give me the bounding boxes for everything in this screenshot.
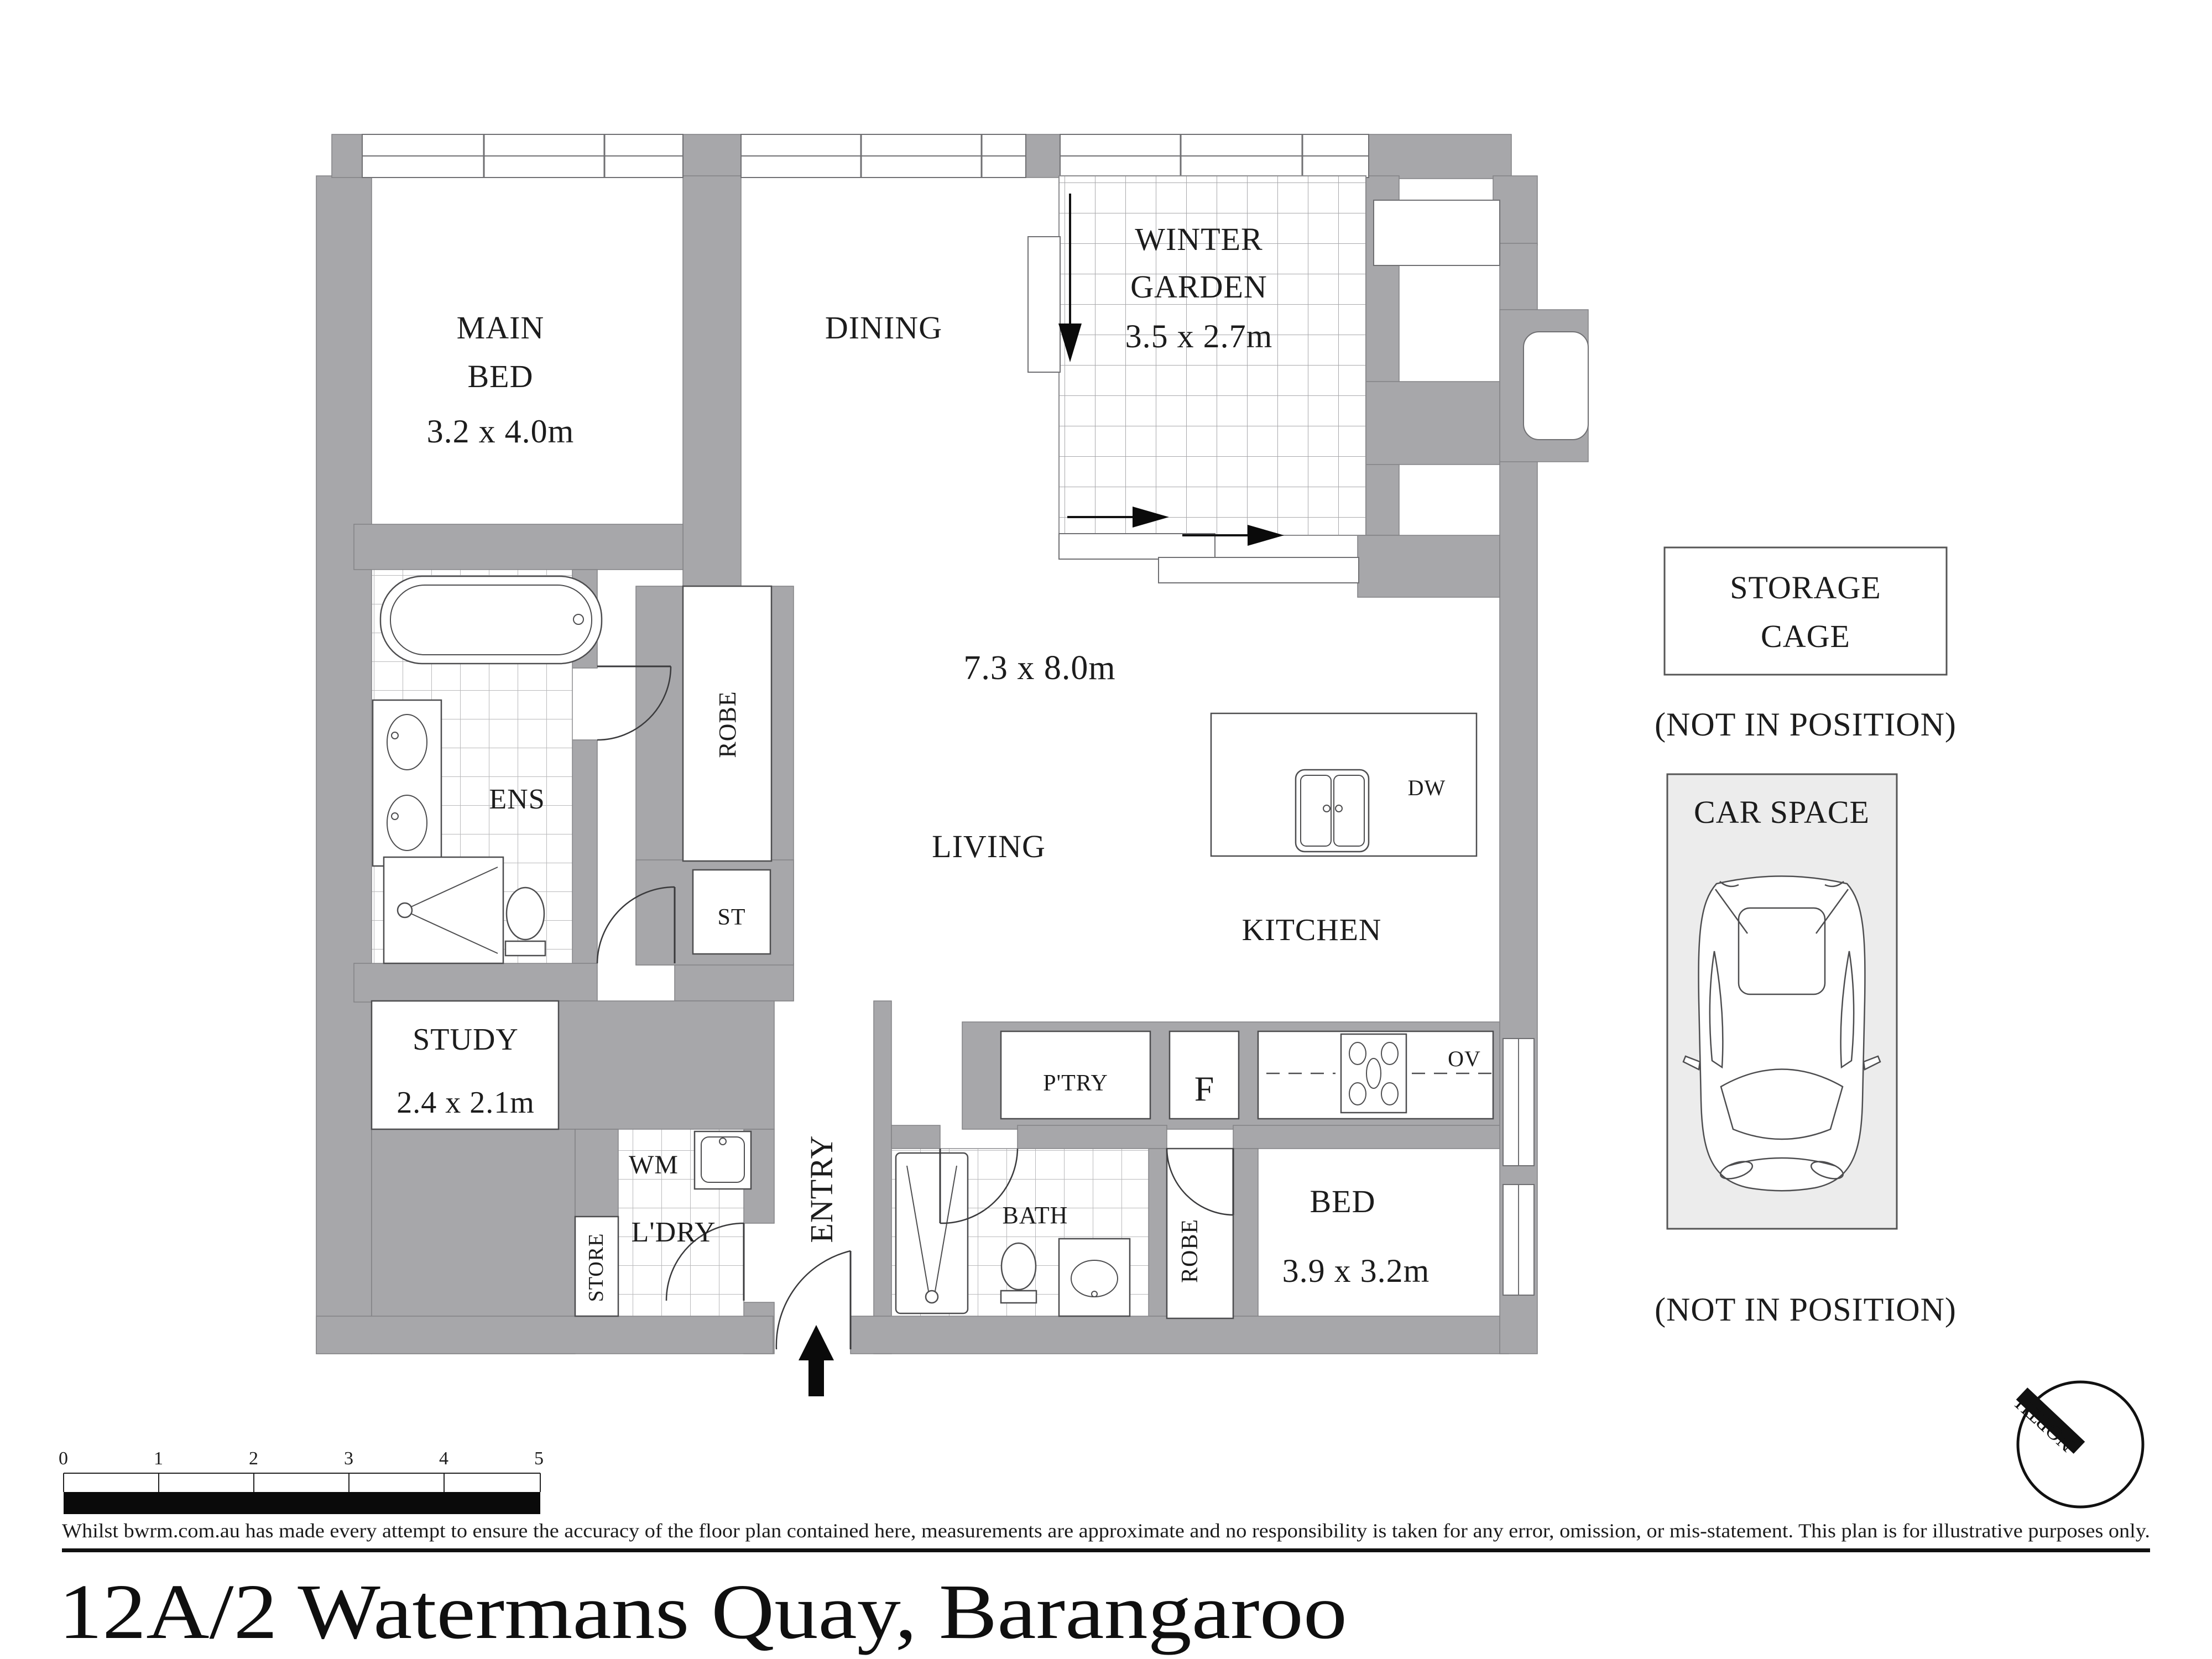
toilet-icon [505, 888, 545, 956]
storage-cage-label2: CAGE [1761, 618, 1850, 654]
scale-tick-0: 0 [59, 1448, 69, 1469]
not-in-position-label: (NOT IN POSITION) [1655, 706, 1957, 743]
bed-dims: 3.9 x 3.2m [1282, 1253, 1430, 1289]
sliding-door-track [1028, 237, 1060, 372]
sliding-door-track [1159, 557, 1359, 583]
scale-tick-5: 5 [534, 1448, 544, 1469]
bath-label: BATH [1003, 1202, 1068, 1229]
disclaimer-text: Whilst bwrm.com.au has made every attemp… [62, 1520, 2150, 1542]
north-compass: NORTH [2011, 1382, 2143, 1507]
scale-tick-2: 2 [249, 1448, 259, 1469]
fridge-label: F [1194, 1069, 1215, 1108]
window-segment [1060, 134, 1369, 178]
entry-arrow-icon [799, 1325, 834, 1396]
window-segment [741, 134, 1026, 178]
facade-recess [1524, 332, 1588, 440]
storage-cage-label: STORAGE [1730, 570, 1881, 606]
window-segment [362, 134, 683, 178]
scale-tick-1: 1 [154, 1448, 164, 1469]
entry-label: ENTRY [804, 1135, 839, 1243]
study-label: STUDY [413, 1022, 519, 1057]
not-in-position-label2: (NOT IN POSITION) [1655, 1291, 1957, 1328]
dining-label: DINING [825, 310, 942, 346]
bathtub-icon [380, 576, 602, 664]
kitchen-label: KITCHEN [1242, 913, 1382, 947]
scale-bar: 0 1 2 3 4 5 [59, 1448, 544, 1514]
main-bed-label2: BED [468, 358, 534, 394]
laundry-label: L'DRY [631, 1217, 716, 1248]
living-dims: 7.3 x 8.0m [963, 649, 1115, 687]
living-label: LIVING [932, 828, 1046, 864]
car-space-label: CAR SPACE [1694, 794, 1870, 830]
scale-tick-3: 3 [344, 1448, 354, 1469]
bed-label: BED [1310, 1183, 1376, 1219]
scale-bar-fill [64, 1492, 540, 1514]
robe-bed-label: ROBE [1177, 1219, 1203, 1283]
shower-icon [384, 857, 503, 963]
divider-line [62, 1548, 2150, 1552]
study-dims: 2.4 x 2.1m [397, 1086, 535, 1120]
car-icon [1683, 877, 1880, 1191]
footer: Whilst bwrm.com.au has made every attemp… [59, 1520, 2150, 1655]
floorplan-page: MAIN BED 3.2 x 4.0m DINING WINTER GARDEN… [0, 0, 2212, 1659]
toilet-icon [1001, 1243, 1036, 1303]
scale-tick-4: 4 [439, 1448, 449, 1469]
dw-label: DW [1408, 775, 1446, 800]
storage-cage-box [1665, 547, 1947, 675]
pantry-label: P'TRY [1043, 1071, 1108, 1096]
st-label: ST [717, 905, 745, 930]
laundry-sink-icon [695, 1131, 751, 1189]
winter-garden-label: WINTER [1135, 221, 1263, 257]
wm-label: WM [629, 1150, 679, 1180]
ens-label: ENS [489, 784, 545, 815]
main-bed-dims: 3.2 x 4.0m [427, 413, 575, 450]
main-bed-label: MAIN [457, 310, 545, 346]
winter-garden-label2: GARDEN [1130, 269, 1267, 305]
vanity-icon [373, 700, 441, 866]
shower-icon [896, 1153, 968, 1313]
floorplan-drawing: MAIN BED 3.2 x 4.0m DINING WINTER GARDEN… [0, 0, 2212, 1659]
double-sink-icon [1296, 770, 1369, 852]
sliding-door-track [1059, 534, 1215, 559]
basin-icon [1059, 1239, 1130, 1316]
planter-box [1374, 200, 1500, 265]
oven-label: OV [1448, 1046, 1481, 1071]
robe-main-label: ROBE [714, 691, 741, 758]
winter-garden-dims: 3.5 x 2.7m [1125, 318, 1273, 354]
page-title: 12A/2 Watermans Quay, Barangaroo [59, 1568, 1347, 1655]
outside-annotations: STORAGE CAGE (NOT IN POSITION) CAR SPACE… [1655, 547, 1957, 1328]
store-label: STORE [585, 1233, 608, 1302]
